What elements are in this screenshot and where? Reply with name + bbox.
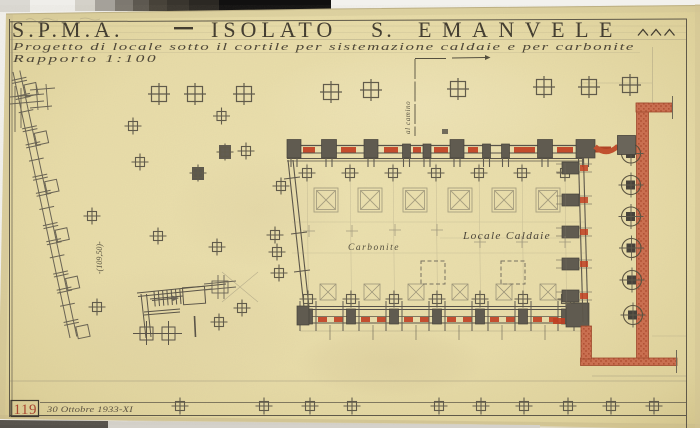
- svg-text:al camino: al camino: [404, 101, 412, 134]
- svg-text:Rapporto 1:100: Rapporto 1:100: [11, 53, 158, 65]
- svg-text:Progetto di locale sotto il co: Progetto di locale sotto il cortile per …: [11, 42, 635, 53]
- svg-text:119: 119: [14, 402, 37, 418]
- svg-text:Locale Caldaie: Locale Caldaie: [462, 231, 551, 242]
- svg-text:EMANVELE: EMANVELE: [418, 17, 623, 42]
- svg-text:30 Ottobre 1933-XI: 30 Ottobre 1933-XI: [46, 404, 134, 414]
- svg-text:S.P.M.A.: S.P.M.A.: [12, 17, 123, 42]
- svg-text:-(109,50)-: -(109,50)-: [95, 241, 104, 274]
- svg-text:Carbonite: Carbonite: [348, 243, 400, 253]
- svg-text:ISOLATO: ISOLATO: [211, 17, 337, 42]
- svg-text:S.: S.: [371, 17, 395, 42]
